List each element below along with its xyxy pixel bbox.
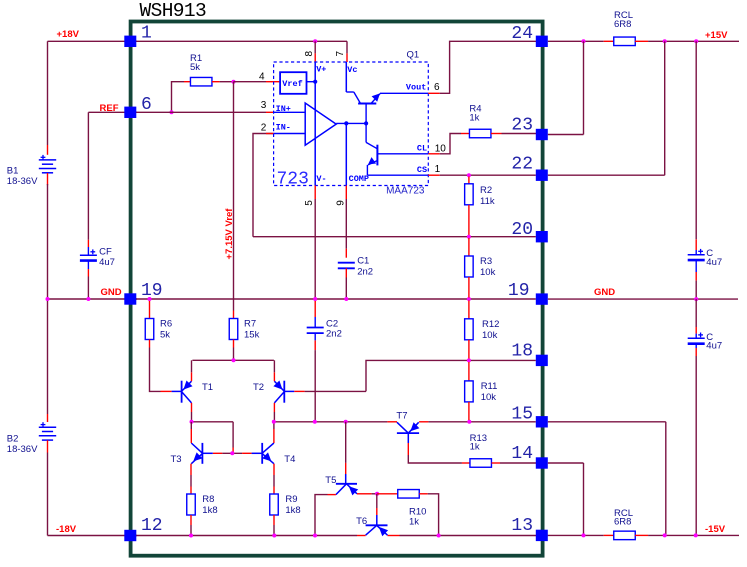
svg-text:1k: 1k xyxy=(409,517,419,528)
svg-text:4u7: 4u7 xyxy=(706,341,722,352)
svg-text:MAA723: MAA723 xyxy=(386,186,425,197)
svg-text:1k: 1k xyxy=(469,113,479,124)
svg-text:20: 20 xyxy=(511,220,533,240)
svg-text:T5: T5 xyxy=(325,475,336,486)
svg-text:18: 18 xyxy=(511,342,533,362)
svg-text:13: 13 xyxy=(511,516,533,536)
svg-text:5: 5 xyxy=(304,200,315,206)
svg-text:Vref: Vref xyxy=(282,79,302,89)
svg-text:+7.15V Vref: +7.15V Vref xyxy=(224,208,235,260)
svg-text:Vc: Vc xyxy=(347,65,357,75)
svg-text:10k: 10k xyxy=(481,392,497,403)
svg-text:WSH913: WSH913 xyxy=(140,0,207,22)
svg-text:V-: V- xyxy=(316,174,326,184)
svg-text:R2: R2 xyxy=(480,185,492,196)
svg-text:T1: T1 xyxy=(202,382,213,393)
svg-text:5k: 5k xyxy=(190,62,200,73)
svg-text:GND: GND xyxy=(101,287,122,298)
svg-text:R9: R9 xyxy=(285,494,297,505)
svg-text:12: 12 xyxy=(141,516,163,536)
svg-text:24: 24 xyxy=(511,24,533,44)
svg-text:R8: R8 xyxy=(202,494,214,505)
svg-text:B1: B1 xyxy=(7,166,19,177)
svg-text:10k: 10k xyxy=(482,330,498,341)
svg-text:R3: R3 xyxy=(480,256,492,267)
svg-text:REF: REF xyxy=(100,103,119,114)
svg-text:14: 14 xyxy=(511,444,533,464)
svg-text:10: 10 xyxy=(435,144,447,155)
svg-text:19: 19 xyxy=(508,281,530,301)
svg-text:1: 1 xyxy=(141,23,152,43)
svg-text:1: 1 xyxy=(435,164,441,175)
svg-text:+18V: +18V xyxy=(57,29,80,40)
svg-text:22: 22 xyxy=(511,155,533,175)
svg-text:T3: T3 xyxy=(171,454,182,465)
svg-text:2: 2 xyxy=(261,123,267,134)
svg-text:1k8: 1k8 xyxy=(202,505,217,516)
svg-text:B2: B2 xyxy=(7,434,19,445)
svg-text:COMP: COMP xyxy=(349,174,369,184)
svg-text:8: 8 xyxy=(304,51,315,57)
svg-text:4u7: 4u7 xyxy=(99,257,115,268)
svg-text:5k: 5k xyxy=(160,330,170,341)
svg-text:15: 15 xyxy=(511,405,533,425)
svg-text:IN+: IN+ xyxy=(276,104,291,114)
svg-text:18-36V: 18-36V xyxy=(7,444,38,455)
svg-text:Q1: Q1 xyxy=(407,50,420,61)
svg-text:2n2: 2n2 xyxy=(357,267,373,278)
svg-text:1k: 1k xyxy=(470,442,480,453)
svg-text:2n2: 2n2 xyxy=(326,329,342,340)
svg-text:1k8: 1k8 xyxy=(285,505,300,516)
svg-text:6R8: 6R8 xyxy=(614,517,631,528)
svg-text:6: 6 xyxy=(434,82,440,93)
svg-text:+15V: +15V xyxy=(705,30,728,41)
svg-text:R11: R11 xyxy=(481,381,498,392)
svg-text:T2: T2 xyxy=(253,382,264,393)
svg-text:GND: GND xyxy=(594,287,615,298)
svg-text:V+: V+ xyxy=(316,65,326,75)
svg-text:Vout: Vout xyxy=(406,83,426,93)
svg-text:CS: CS xyxy=(417,165,427,175)
svg-text:R6: R6 xyxy=(160,319,172,330)
svg-text:6: 6 xyxy=(141,95,152,115)
svg-text:C1: C1 xyxy=(357,256,369,267)
svg-text:7: 7 xyxy=(335,51,346,57)
svg-text:723: 723 xyxy=(277,170,309,190)
svg-text:T4: T4 xyxy=(284,454,295,465)
svg-text:4: 4 xyxy=(259,72,265,83)
svg-text:T7: T7 xyxy=(396,411,407,422)
svg-text:10k: 10k xyxy=(480,267,496,278)
svg-text:IN-: IN- xyxy=(276,123,291,133)
svg-text:18-36V: 18-36V xyxy=(7,176,38,187)
svg-text:19: 19 xyxy=(141,281,163,301)
svg-text:23: 23 xyxy=(511,116,533,136)
svg-text:T6: T6 xyxy=(356,516,367,527)
svg-text:3: 3 xyxy=(261,100,267,111)
svg-text:4u7: 4u7 xyxy=(706,257,722,268)
svg-text:CF: CF xyxy=(99,247,112,258)
svg-text:11k: 11k xyxy=(480,196,495,207)
svg-text:15k: 15k xyxy=(244,330,260,341)
svg-text:R12: R12 xyxy=(482,319,499,330)
svg-text:-18V: -18V xyxy=(56,524,77,535)
svg-text:CL: CL xyxy=(417,144,427,154)
svg-text:6R8: 6R8 xyxy=(614,19,631,30)
svg-text:9: 9 xyxy=(335,200,346,206)
svg-text:-15V: -15V xyxy=(705,524,726,535)
svg-text:R7: R7 xyxy=(244,319,256,330)
